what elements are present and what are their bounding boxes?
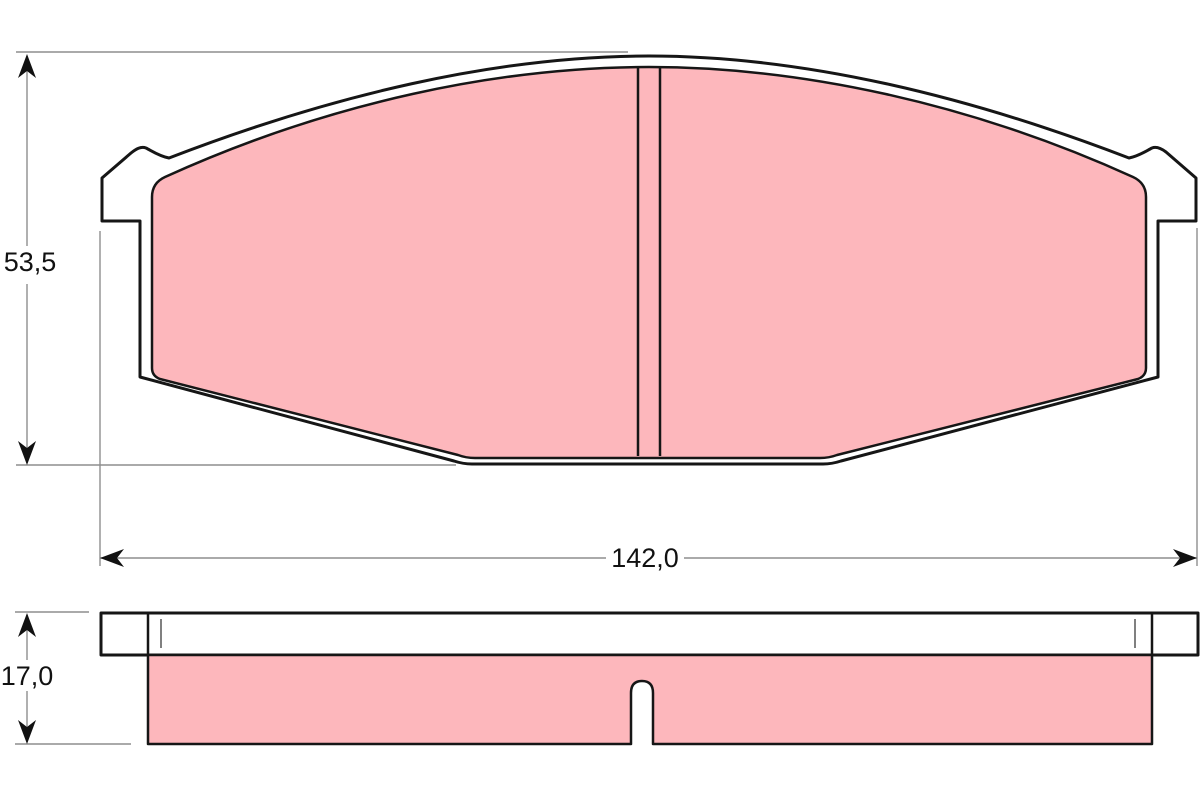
brake-pad-diagram: 53,5 142,0 [0, 0, 1200, 800]
technical-drawing-canvas: 53,5 142,0 [0, 0, 1200, 800]
width-dimension-label: 142,0 [611, 543, 679, 573]
thickness-dimension-label: 17,0 [1, 661, 54, 691]
side-backing-plate [101, 613, 1198, 655]
front-view [102, 56, 1196, 464]
side-friction-material [148, 655, 1152, 744]
front-friction-material [152, 67, 1146, 458]
side-view [101, 613, 1198, 744]
height-dimension-label: 53,5 [4, 247, 57, 277]
